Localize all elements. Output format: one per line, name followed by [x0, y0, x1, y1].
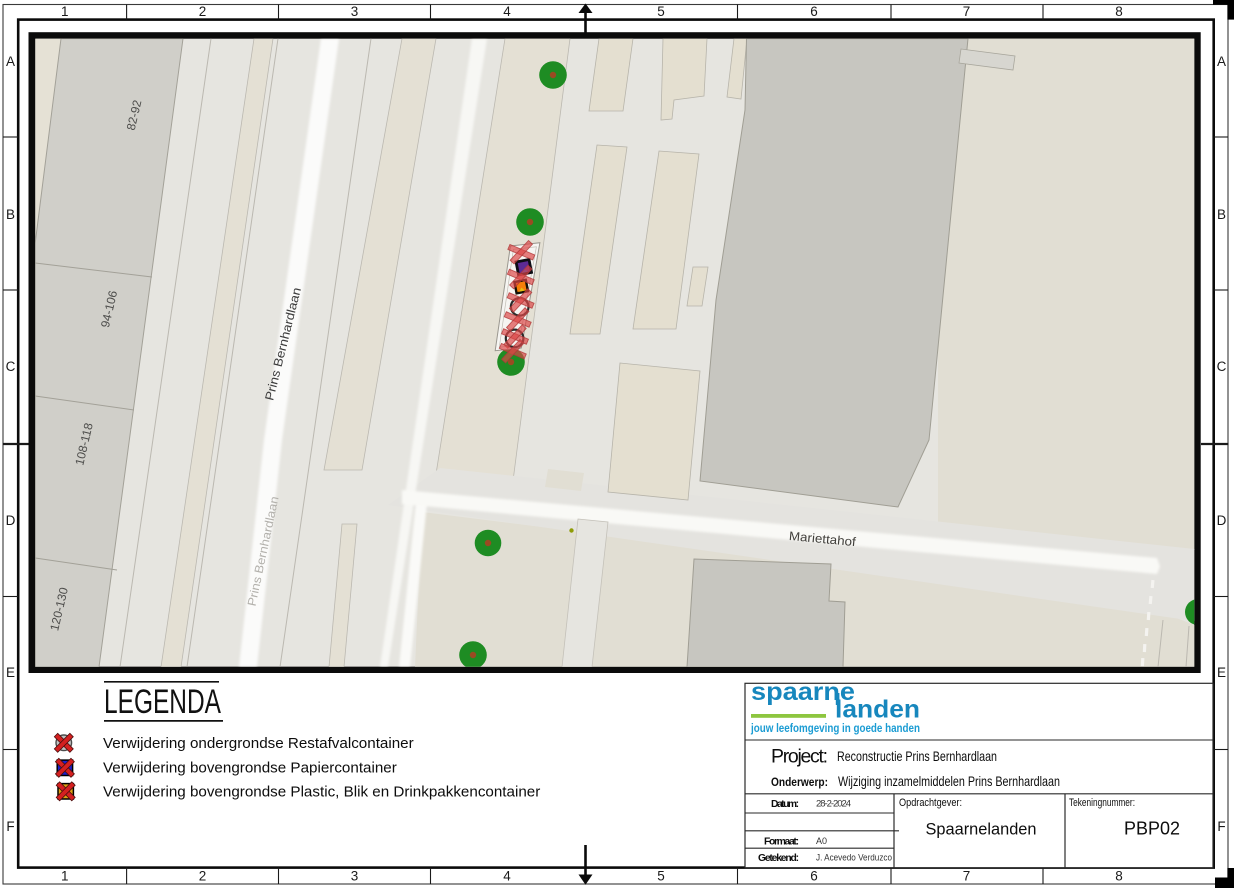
- svg-text:D: D: [6, 513, 16, 528]
- svg-text:Getekend:: Getekend:: [758, 853, 799, 864]
- svg-text:E: E: [1217, 665, 1226, 680]
- svg-text:5: 5: [657, 869, 665, 884]
- svg-text:4: 4: [503, 869, 511, 884]
- svg-text:4: 4: [503, 4, 511, 19]
- svg-text:Opdrachtgever:: Opdrachtgever:: [899, 797, 962, 809]
- svg-text:8: 8: [1115, 4, 1123, 19]
- svg-text:2: 2: [199, 869, 207, 884]
- svg-text:A0: A0: [816, 836, 827, 846]
- svg-text:F: F: [6, 819, 14, 834]
- svg-text:Verwijdering ondergrondse Rest: Verwijdering ondergrondse Restafvalconta…: [103, 735, 414, 752]
- svg-text:8: 8: [1115, 869, 1123, 884]
- svg-text:7: 7: [963, 869, 971, 884]
- svg-text:Project:: Project:: [771, 746, 828, 768]
- svg-text:6: 6: [810, 869, 818, 884]
- svg-text:3: 3: [351, 869, 359, 884]
- svg-text:1: 1: [61, 869, 69, 884]
- svg-text:6: 6: [810, 4, 818, 19]
- svg-text:Onderwerp:: Onderwerp:: [771, 775, 828, 789]
- svg-text:2: 2: [199, 4, 207, 19]
- svg-text:E: E: [6, 665, 15, 680]
- svg-text:C: C: [1217, 359, 1227, 374]
- svg-text:PBP02: PBP02: [1124, 819, 1180, 839]
- svg-text:Spaarnelanden: Spaarnelanden: [926, 821, 1037, 839]
- svg-text:landen: landen: [835, 696, 920, 724]
- svg-text:F: F: [1217, 819, 1225, 834]
- svg-text:Reconstructie Prins Bernhardla: Reconstructie Prins Bernhardlaan: [837, 749, 997, 764]
- svg-text:D: D: [1217, 513, 1227, 528]
- svg-text:Datum:: Datum:: [771, 799, 799, 810]
- svg-text:B: B: [6, 207, 15, 222]
- svg-text:5: 5: [657, 4, 665, 19]
- svg-text:A: A: [6, 54, 15, 69]
- svg-text:B: B: [1217, 207, 1226, 222]
- svg-text:28-2-2024: 28-2-2024: [816, 799, 851, 810]
- svg-text:jouw leefomgeving in goede han: jouw leefomgeving in goede handen: [750, 721, 920, 735]
- svg-text:Tekeningnummer:: Tekeningnummer:: [1069, 797, 1135, 809]
- svg-text:A: A: [1217, 54, 1226, 69]
- svg-text:7: 7: [963, 4, 971, 19]
- svg-text:C: C: [6, 359, 16, 374]
- svg-text:J. Acevedo Verduzco: J. Acevedo Verduzco: [816, 852, 892, 862]
- svg-text:3: 3: [351, 4, 359, 19]
- svg-text:Formaat:: Formaat:: [764, 837, 799, 848]
- svg-text:Wijziging inzamelmiddelen Prin: Wijziging inzamelmiddelen Prins Bernhard…: [838, 774, 1060, 789]
- svg-text:Verwijdering bovengrondse Plas: Verwijdering bovengrondse Plastic, Blik …: [103, 783, 540, 800]
- svg-text:Verwijdering bovengrondse Papi: Verwijdering bovengrondse Papiercontaine…: [103, 760, 397, 777]
- svg-text:LEGENDA: LEGENDA: [104, 683, 221, 721]
- svg-text:1: 1: [61, 4, 69, 19]
